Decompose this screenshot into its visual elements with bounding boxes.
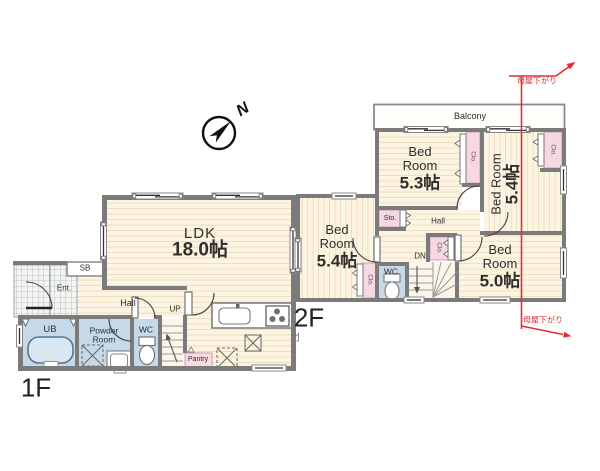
bed1-line1: Bed <box>403 145 438 159</box>
pantry-label: Pantry <box>188 356 208 364</box>
room-size-bed4: 5.0帖 <box>480 273 521 292</box>
window <box>561 248 567 278</box>
window <box>295 238 301 272</box>
closet-label: Clo. <box>366 274 373 286</box>
closet-label: Clo. <box>469 151 476 163</box>
room-label-ub: UB <box>43 325 56 335</box>
bed4-line2: Room <box>483 257 518 271</box>
bed2-name: Bed Room <box>490 153 504 214</box>
ldk-door <box>185 292 192 315</box>
room-label-bed1: Bed Room <box>403 145 438 173</box>
toilet-bowl <box>140 346 155 365</box>
kitchen-sink <box>219 308 250 324</box>
window <box>252 365 286 371</box>
closet-label: Clo. <box>435 242 442 254</box>
room-label-wc-2f: WC <box>384 267 398 276</box>
window <box>101 222 107 260</box>
floor1-label: 1F <box>21 374 51 403</box>
roof-note-top: 母屋下がり <box>517 78 557 87</box>
room-label-bed2: Bed Room 5.4帖 <box>490 153 523 214</box>
floor-plan-drawing <box>0 0 600 471</box>
bed3-door <box>374 237 380 262</box>
window <box>212 193 263 199</box>
bed3-line2: Room <box>320 237 355 251</box>
stairs-down-label: DN <box>414 253 426 262</box>
room-label-hall-1f: Hall <box>120 299 136 309</box>
toilet-tank <box>139 337 155 346</box>
bed3-line1: Bed <box>320 223 355 237</box>
stairs-up-label: UP <box>169 306 180 315</box>
room-label-bed4: Bed Room <box>483 243 518 271</box>
floor2-label: 2F <box>294 304 324 333</box>
bathtub <box>28 337 73 363</box>
faucet <box>236 304 240 309</box>
room-label-wc-1f: WC <box>139 325 153 334</box>
room-size-bed1: 5.3帖 <box>400 175 441 194</box>
balcony-label: Balcony <box>454 112 486 122</box>
room-label-hall-2f: Hall <box>431 218 445 227</box>
compass-icon <box>203 117 235 149</box>
window <box>480 297 510 303</box>
window <box>332 193 356 199</box>
shoe-box-label: SB <box>80 265 91 274</box>
powder-line2: Room <box>90 336 119 345</box>
toilet-bowl <box>385 282 399 300</box>
floor-plan: N LDK 18.0帖 Hall UP SB Ent. UB Powder Ro… <box>0 0 600 471</box>
entrance-label: Ent. <box>57 285 71 294</box>
bed4-door <box>455 235 461 261</box>
kitchen-counter <box>212 303 292 328</box>
roof-note-bottom: 母屋下がり <box>523 317 563 326</box>
room-size-bed3: 5.4帖 <box>317 253 358 272</box>
room-label-powder: Powder Room <box>90 327 119 346</box>
window <box>561 166 567 194</box>
window <box>486 127 530 133</box>
window <box>17 325 23 347</box>
window <box>132 193 183 199</box>
room-size-ldk: 18.0帖 <box>172 241 228 262</box>
window <box>404 297 424 303</box>
closet-label: Clo. <box>549 144 556 156</box>
room-label-bed3: Bed Room <box>320 223 355 251</box>
storage-label: Sto. <box>384 215 396 223</box>
bed1-line2: Room <box>403 159 438 173</box>
bed2-size: 5.4帖 <box>504 153 523 214</box>
bed4-line1: Bed <box>483 243 518 257</box>
window <box>404 127 448 133</box>
